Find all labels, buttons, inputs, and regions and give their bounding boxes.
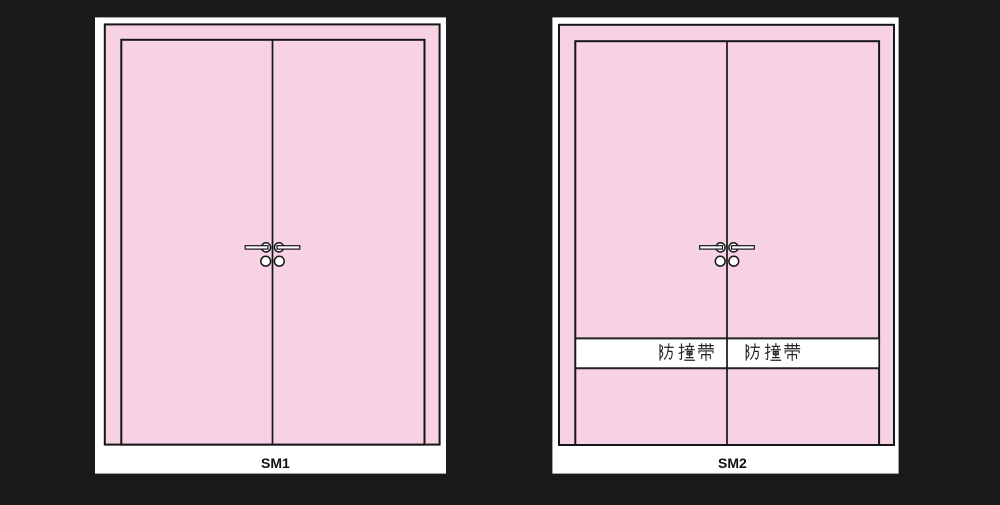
svg-text:SM2: SM2: [718, 455, 747, 471]
svg-text:SM1: SM1: [261, 455, 290, 471]
